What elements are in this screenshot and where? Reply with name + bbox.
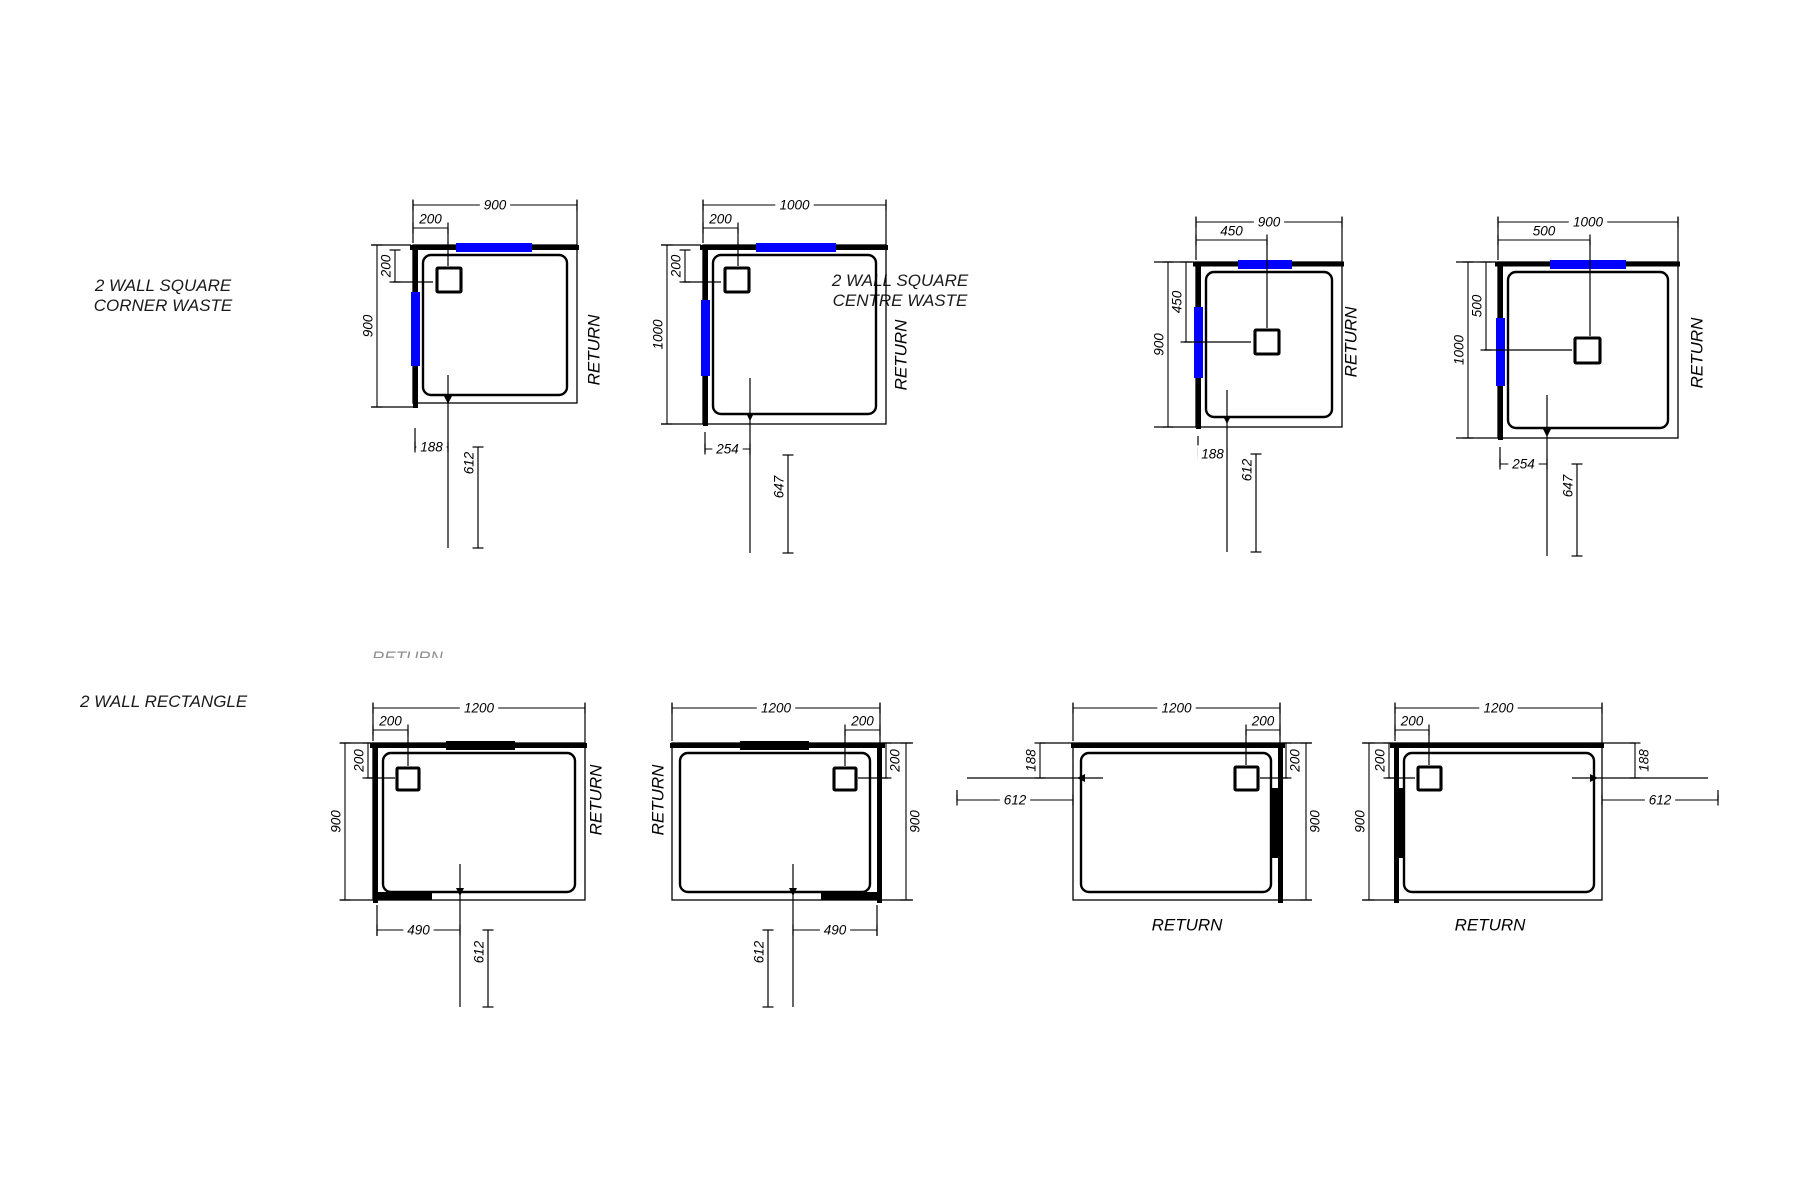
return-label: RETURN bbox=[892, 319, 911, 391]
dim-label: 188 bbox=[1201, 447, 1224, 462]
dim-label: 200 bbox=[1288, 749, 1303, 773]
dim-label: 1200 bbox=[1161, 701, 1192, 716]
drain-arrow bbox=[1543, 429, 1551, 437]
return-label: RETURN bbox=[1342, 306, 1361, 378]
tray-outline bbox=[703, 245, 886, 424]
dim-label: 1200 bbox=[1483, 701, 1514, 716]
dim-label: 450 bbox=[1170, 290, 1185, 313]
panel-bar-black bbox=[821, 892, 879, 900]
tray-inner-edge bbox=[713, 255, 876, 414]
drawing-sheet: { "page": {"background": "#ffffff"}, "co… bbox=[0, 0, 1800, 1200]
return-label: RETURN bbox=[587, 764, 606, 836]
waste-square bbox=[1255, 330, 1279, 354]
waste-square bbox=[1418, 767, 1441, 790]
panel-bar-black bbox=[1270, 788, 1279, 858]
tray-inner-edge bbox=[1081, 753, 1271, 892]
panel-bar-black bbox=[374, 892, 432, 900]
waste-square bbox=[397, 768, 419, 790]
drain-arrow bbox=[1223, 416, 1231, 424]
dim-label: 188 bbox=[1024, 749, 1039, 772]
waste-square bbox=[1235, 767, 1258, 790]
waste-square bbox=[834, 768, 856, 790]
dim-label: 200 bbox=[1400, 714, 1424, 729]
return-label: 612 bbox=[752, 940, 767, 963]
dim-label: 188 bbox=[420, 440, 443, 455]
waste-square bbox=[725, 268, 749, 292]
panel-bar-black bbox=[740, 741, 809, 750]
return-label: RETURN bbox=[1688, 317, 1707, 389]
dim-label: 500 bbox=[1470, 294, 1485, 317]
tray-inner-edge bbox=[383, 753, 575, 892]
panel-bar-blue bbox=[701, 300, 710, 376]
panel-bar-blue bbox=[1238, 260, 1292, 269]
dim-label: 200 bbox=[888, 749, 903, 773]
panel-bar-blue bbox=[1550, 260, 1626, 269]
drawing-canvas: 900200200900188612RETURN1000200200100025… bbox=[0, 0, 1800, 1200]
tray-inner-edge bbox=[1404, 753, 1594, 892]
panel-bar-black bbox=[1396, 788, 1405, 858]
dim-label: 1000 bbox=[1452, 334, 1467, 365]
panel-bar-blue bbox=[1496, 318, 1505, 386]
dim-label: 200 bbox=[379, 254, 394, 278]
dim-label: 900 bbox=[484, 198, 507, 213]
return-label: RETURN bbox=[1455, 916, 1527, 935]
panel-bar-blue bbox=[411, 292, 420, 366]
tray-inner-edge bbox=[1206, 272, 1332, 417]
dim-label: 612 bbox=[1004, 793, 1027, 808]
return-label: RETURN bbox=[585, 314, 604, 386]
dim-label: 1000 bbox=[1573, 215, 1604, 230]
dim-label: 900 bbox=[1353, 810, 1368, 833]
return-label: 647 bbox=[772, 475, 787, 498]
dim-label: 900 bbox=[908, 810, 923, 833]
dim-label: 900 bbox=[329, 810, 344, 833]
dim-label: 200 bbox=[418, 212, 442, 227]
dim-label: 900 bbox=[361, 314, 376, 337]
waste-square bbox=[437, 268, 461, 292]
dim-label: 254 bbox=[1511, 457, 1535, 472]
dim-label: 200 bbox=[1373, 749, 1388, 773]
dim-label: 450 bbox=[1220, 224, 1243, 239]
return-label: 612 bbox=[462, 451, 477, 474]
panel-bar-blue bbox=[456, 243, 532, 252]
dim-label: 200 bbox=[378, 714, 402, 729]
dim-label: 200 bbox=[669, 254, 684, 278]
dim-label: 900 bbox=[1308, 810, 1323, 833]
dim-label: 500 bbox=[1533, 224, 1556, 239]
panel-bar-blue bbox=[756, 243, 836, 252]
dim-label: 1200 bbox=[761, 701, 792, 716]
dim-label: 200 bbox=[708, 212, 732, 227]
drain-arrow bbox=[746, 413, 754, 421]
return-label: 647 bbox=[1561, 474, 1576, 497]
tray-inner-edge bbox=[423, 255, 567, 395]
return-label: 612 bbox=[472, 940, 487, 963]
tray-inner-edge bbox=[680, 753, 870, 892]
dim-label: 200 bbox=[352, 749, 367, 773]
dim-label: 200 bbox=[850, 714, 874, 729]
dim-label: 490 bbox=[407, 923, 430, 938]
dim-label: 1000 bbox=[779, 198, 810, 213]
panel-bar-black bbox=[446, 741, 515, 750]
waste-square bbox=[1575, 338, 1600, 363]
return-label: RETURN bbox=[1152, 916, 1224, 935]
tray-outline bbox=[1196, 262, 1342, 427]
dim-label: 490 bbox=[824, 923, 847, 938]
dim-label: 1000 bbox=[651, 319, 666, 350]
dim-label: 612 bbox=[1649, 793, 1672, 808]
dim-label: 200 bbox=[1251, 714, 1275, 729]
dim-label: 900 bbox=[1258, 215, 1281, 230]
dim-label: 1200 bbox=[464, 701, 495, 716]
dim-label: 188 bbox=[1637, 749, 1652, 772]
return-label: RETURN bbox=[649, 764, 668, 836]
dim-label: 900 bbox=[1152, 333, 1167, 356]
return-label: 612 bbox=[1240, 458, 1255, 481]
dim-label: 254 bbox=[715, 442, 739, 457]
